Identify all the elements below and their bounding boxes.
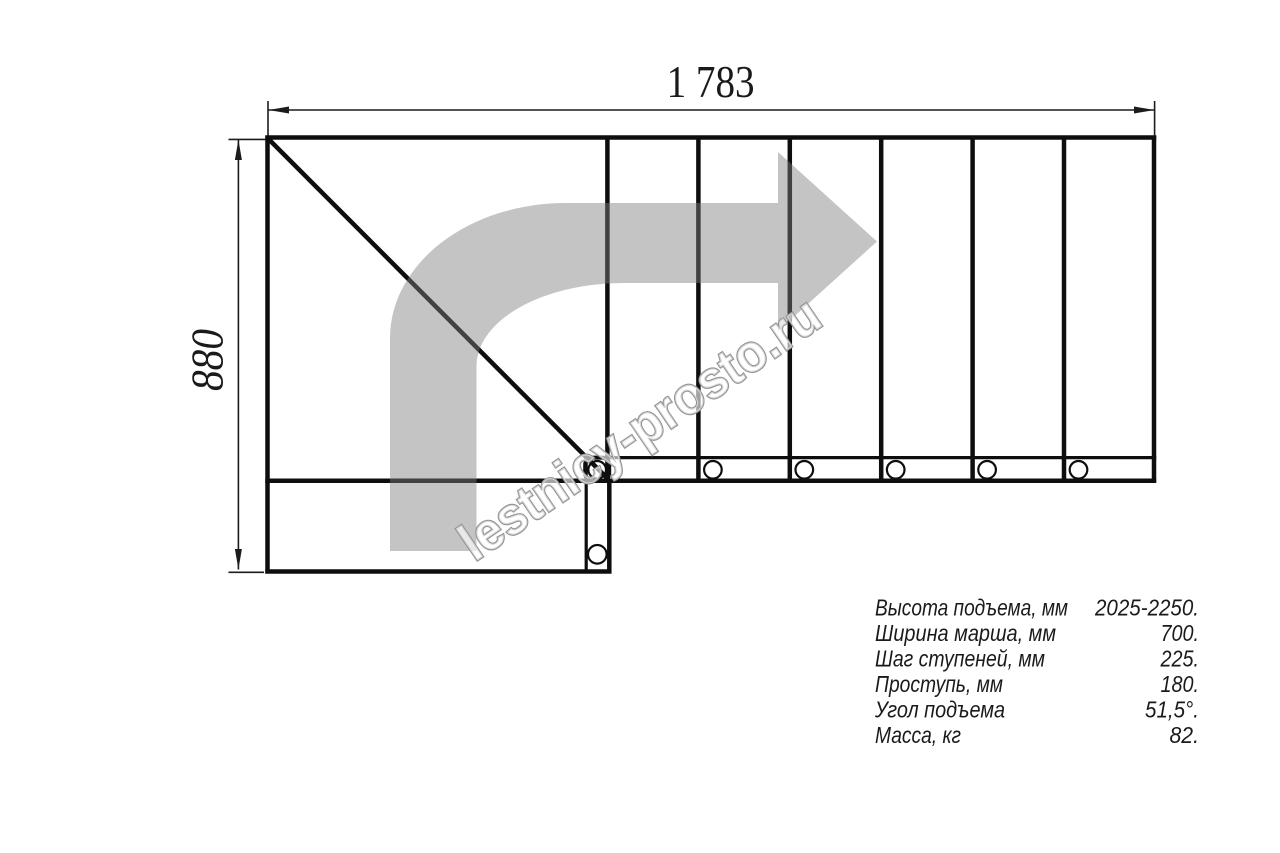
svg-text:Высота подъема, мм: Высота подъема, мм <box>875 595 1068 621</box>
svg-text:Масса, кг: Масса, кг <box>875 722 961 748</box>
svg-text:180.: 180. <box>1161 671 1200 697</box>
svg-text:51,5°.: 51,5°. <box>1145 697 1199 723</box>
svg-text:Проступь, мм: Проступь, мм <box>875 671 1003 697</box>
svg-text:880: 880 <box>182 329 233 391</box>
svg-text:700.: 700. <box>1161 620 1200 646</box>
svg-text:1 783: 1 783 <box>667 56 755 107</box>
svg-text:Ширина марша, мм: Ширина марша, мм <box>875 620 1056 646</box>
svg-text:Шаг ступеней, мм: Шаг ступеней, мм <box>875 646 1045 672</box>
svg-text:82.: 82. <box>1170 722 1200 748</box>
svg-text:Угол подъема: Угол подъема <box>874 697 1005 723</box>
svg-text:225.: 225. <box>1160 646 1199 672</box>
svg-text:2025-2250.: 2025-2250. <box>1094 595 1199 621</box>
